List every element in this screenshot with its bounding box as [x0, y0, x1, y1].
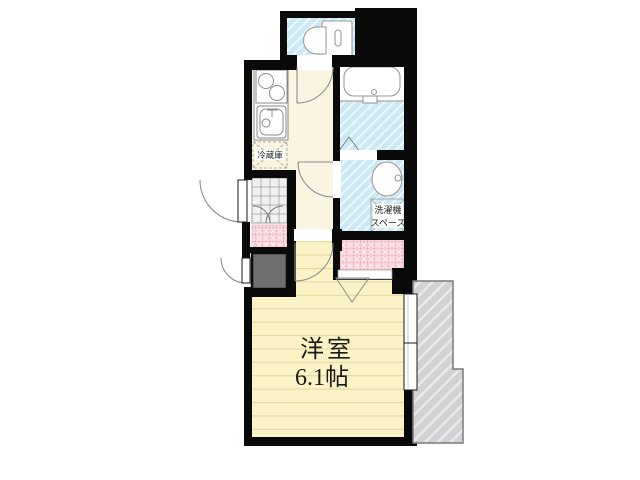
- washing-machine-label-line1: 洗濯機: [374, 204, 401, 215]
- floor-plan-page: 冷蔵庫 洗濯機 スペース: [0, 0, 640, 480]
- washing-machine-label-line2: スペース: [371, 218, 406, 228]
- toilet-doorway: [297, 55, 332, 67]
- exterior-storage-box: [252, 253, 287, 289]
- bathroom-doorway: [340, 150, 377, 160]
- closet: [340, 238, 404, 270]
- western-room-size: 6.1帖: [295, 364, 349, 391]
- toilet-flush-handle: [335, 30, 341, 46]
- toilet-bowl: [304, 27, 327, 54]
- kitchen-counter: [254, 67, 288, 140]
- entrance-door-leaf: [238, 180, 247, 222]
- balcony: [413, 281, 463, 443]
- storage-door-leaf: [242, 258, 250, 283]
- window: [404, 294, 417, 390]
- refrigerator-label: 冷蔵庫: [257, 150, 283, 160]
- washbasin-fixture: [372, 162, 402, 196]
- bathtub-faucet-deck: [363, 96, 377, 103]
- bathtub-fixture: [339, 63, 405, 103]
- entrance-door-swing: [200, 180, 242, 222]
- entrance-tile-floor: [252, 178, 287, 223]
- floor-plan-drawing: 冷蔵庫 洗濯機 スペース: [0, 0, 640, 480]
- washroom-doorway: [333, 161, 341, 198]
- western-room-name: 洋室: [300, 336, 354, 363]
- room-doorway: [294, 229, 332, 241]
- entrance-closet: [252, 225, 287, 247]
- washbasin-faucet: [395, 175, 401, 181]
